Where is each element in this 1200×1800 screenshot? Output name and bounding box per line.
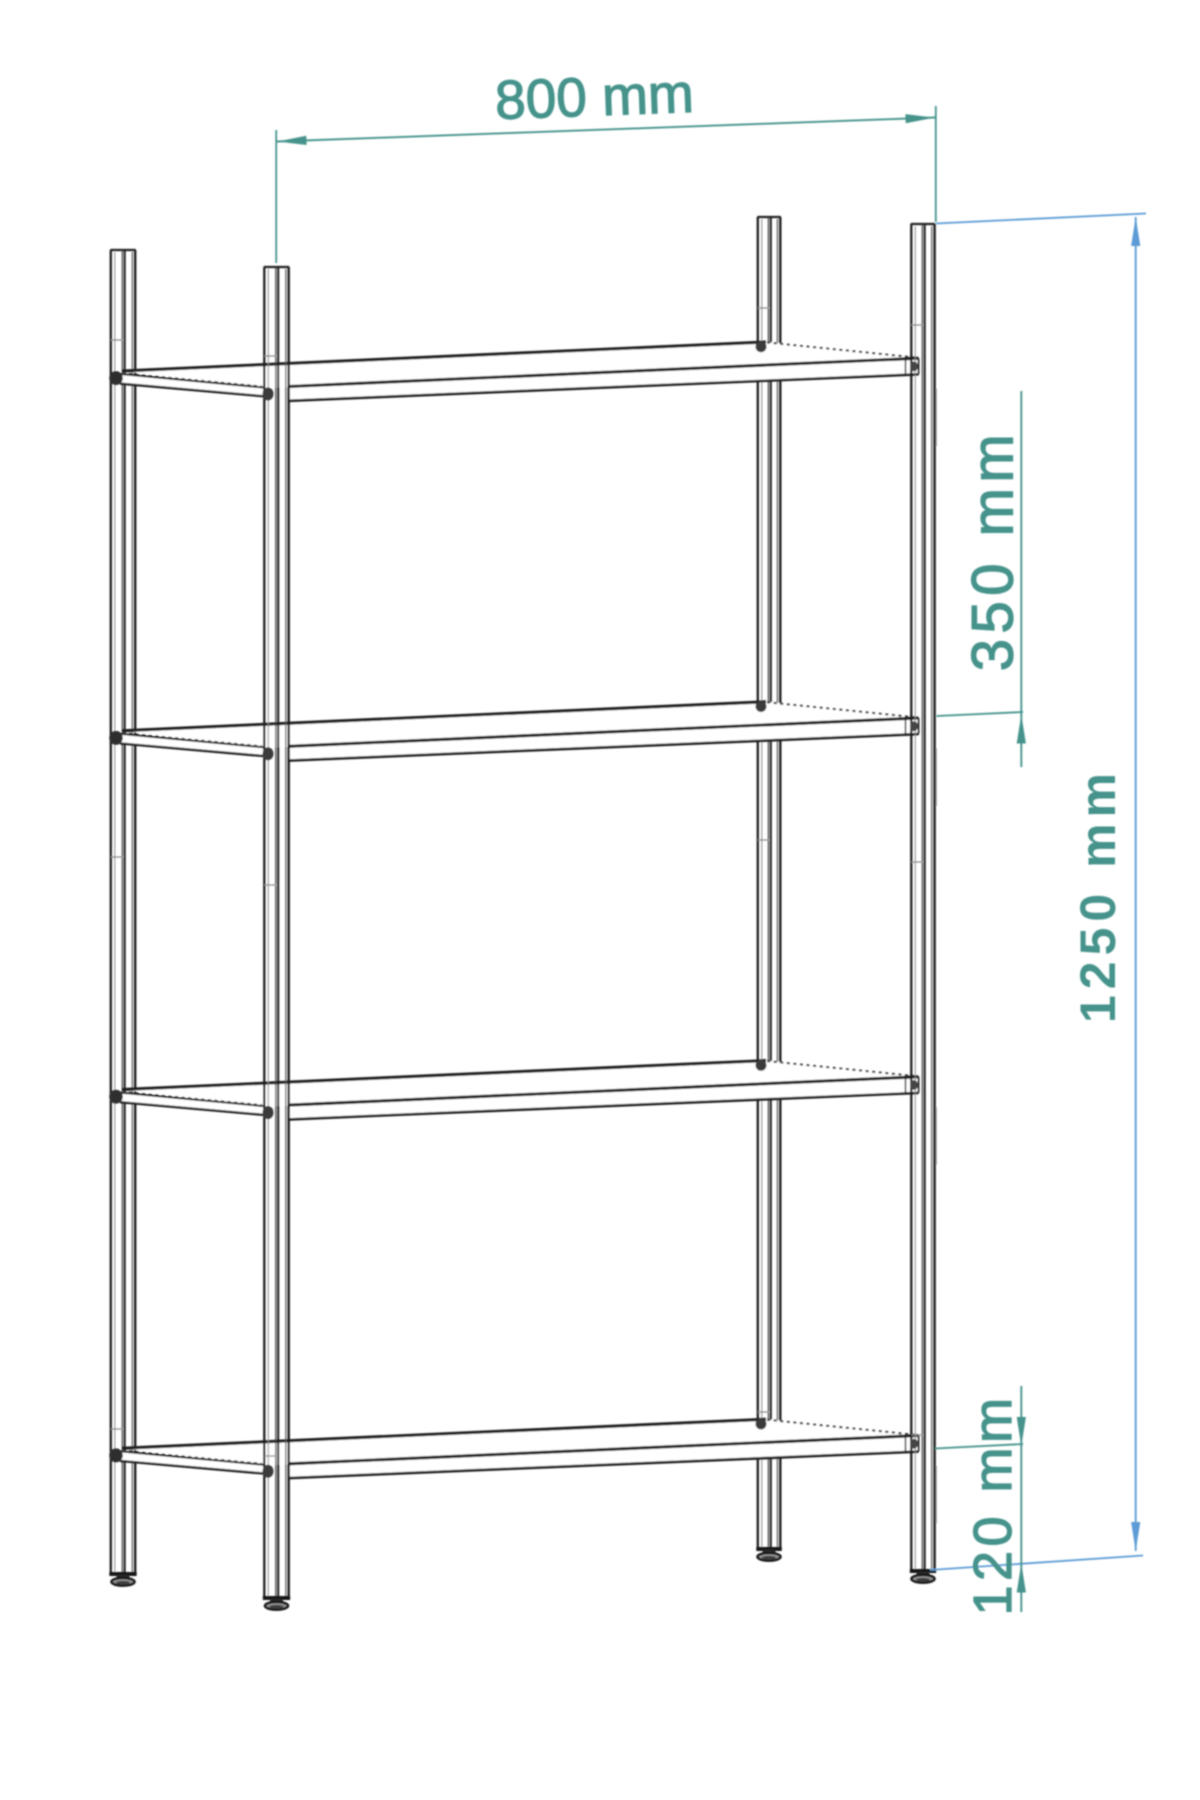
svg-text:800 mm: 800 mm	[494, 62, 695, 131]
svg-text:350 mm: 350 mm	[960, 429, 1025, 672]
svg-text:120 mm: 120 mm	[963, 1393, 1023, 1615]
svg-text:1250 mm: 1250 mm	[1070, 767, 1126, 1023]
